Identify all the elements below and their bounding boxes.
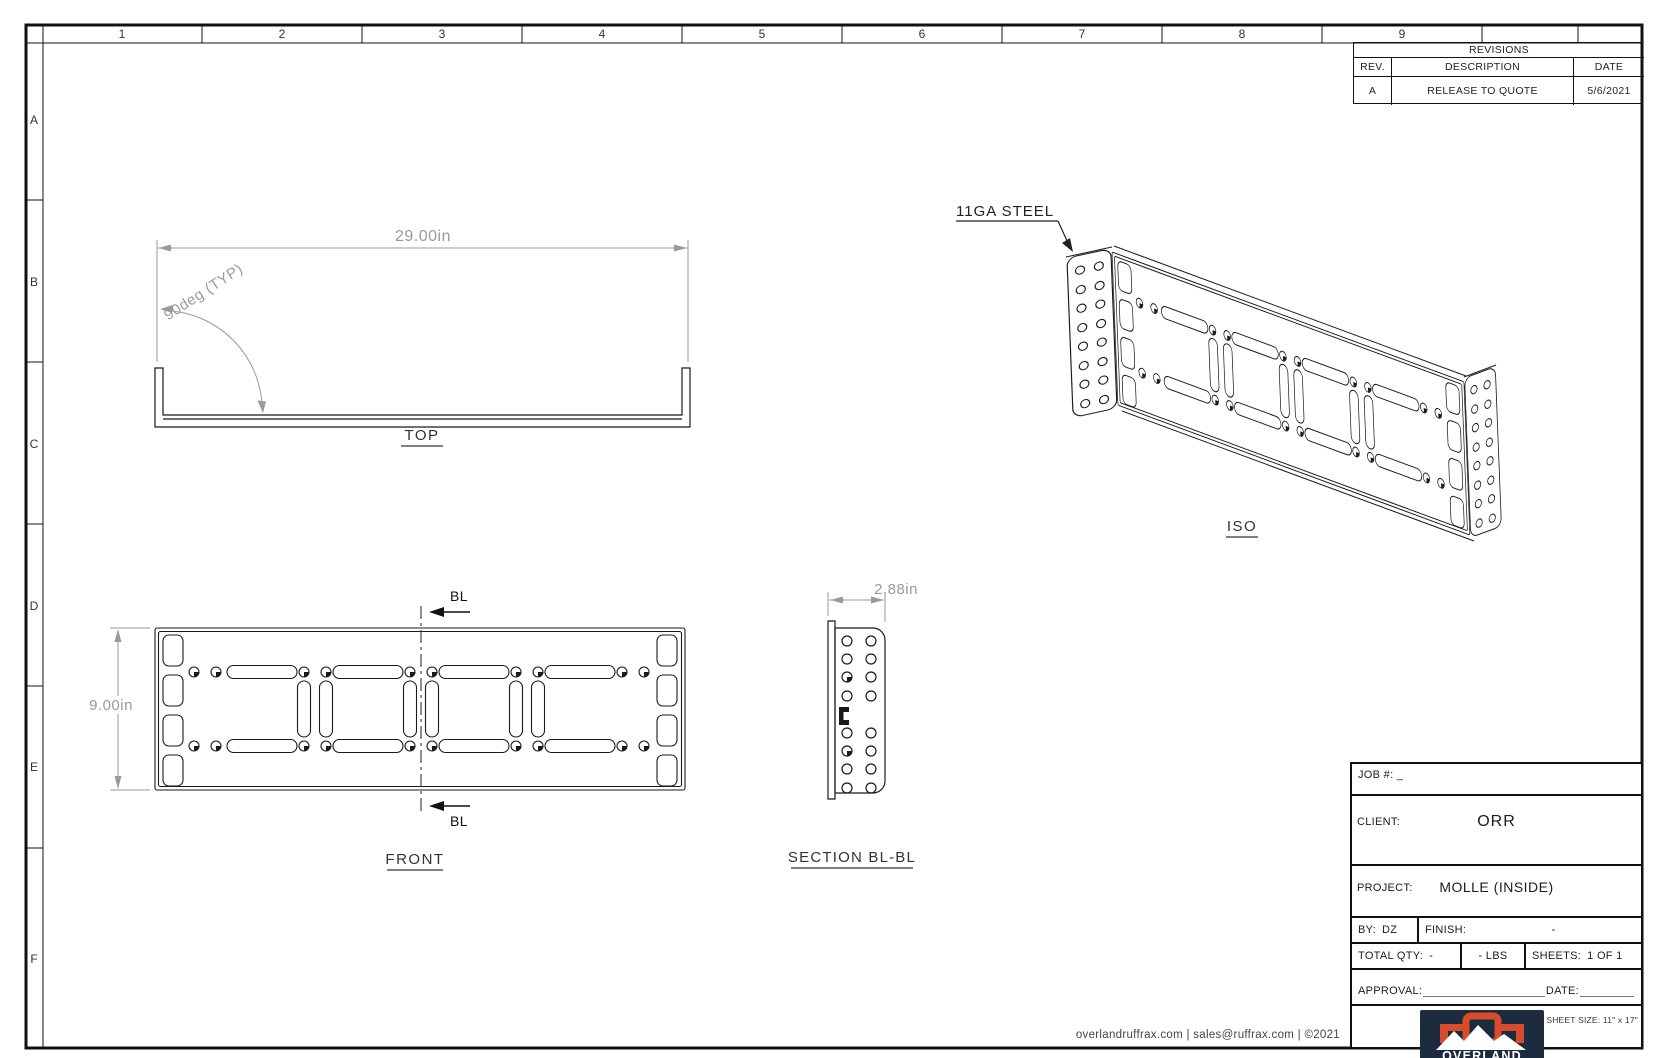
by-value: DZ — [1382, 924, 1397, 936]
project-row: PROJECT: MOLLE (INSIDE) — [1352, 879, 1641, 918]
approval-date-label: DATE: — [1546, 985, 1579, 997]
finish-label: FINISH: — [1425, 924, 1466, 936]
view-label-front: FRONT — [385, 851, 444, 868]
iso-right-flange — [1465, 367, 1502, 538]
job-value: _ — [1397, 769, 1403, 781]
dimension-288in: 2.88in — [874, 581, 918, 598]
client-label: CLIENT: — [1357, 816, 1400, 828]
grid-column-label: 9 — [1399, 27, 1406, 41]
project-label: PROJECT: — [1357, 882, 1413, 894]
sheets-label: SHEETS: — [1532, 950, 1581, 962]
grid-row-label: F — [30, 952, 37, 966]
revisions-col-rev: REV. — [1354, 58, 1392, 77]
title-block: JOB #: _ CLIENT: ORR PROJECT: MOLLE (INS… — [1350, 762, 1643, 1049]
grid-column-label: 8 — [1239, 27, 1246, 41]
grid-row-label: E — [30, 760, 38, 774]
logo-brand-text: OVERLAND — [1442, 1049, 1522, 1058]
job-number-row: JOB #: _ — [1352, 764, 1641, 796]
revision-row-description: RELEASE TO QUOTE — [1392, 77, 1574, 105]
dimension-90deg: 90deg (TYP) — [161, 260, 246, 324]
slot-web-cross-section — [839, 707, 849, 725]
dimension-9in: 9.00in — [89, 697, 133, 714]
top-view: 29.00in 90deg (TYP) TOP — [155, 228, 690, 446]
approval-label: APPROVAL: — [1358, 985, 1422, 997]
total-qty-value: - — [1429, 950, 1433, 962]
grid-column-label: 2 — [279, 27, 286, 41]
section-view: 2.88in SECTION BL-BL — [788, 581, 918, 868]
dimension-29in: 29.00in — [395, 228, 451, 245]
material-callout: 11GA STEEL — [956, 203, 1054, 220]
company-logo: OVERLAND RUFF RAX — [1420, 1010, 1544, 1058]
grid-column-label: 1 — [119, 27, 126, 41]
iso-view: 11GA STEEL ISO — [956, 203, 1501, 541]
revisions-table: REVISIONS REV. DESCRIPTION DATE A RELEAS… — [1353, 42, 1643, 104]
view-label-top: TOP — [404, 427, 439, 444]
front-view: 9.00in BL BL FRONT — [89, 588, 685, 870]
zone-grid-labels: 1 2 3 4 5 6 7 8 9 A B C D E F — [30, 27, 1406, 966]
view-label-section: SECTION BL-BL — [788, 849, 916, 866]
approval-row: APPROVAL: DATE: — [1352, 970, 1641, 1006]
total-qty-label: TOTAL QTY: — [1358, 950, 1423, 962]
grid-column-label: 6 — [919, 27, 926, 41]
grid-row-label: D — [30, 599, 39, 613]
approval-signature-line — [1423, 983, 1545, 997]
grid-column-label: 7 — [1079, 27, 1086, 41]
drawing-sheet: 1 2 3 4 5 6 7 8 9 A B C D E F — [0, 0, 1666, 1058]
grid-row-label: A — [30, 113, 38, 127]
revisions-title: REVISIONS — [1354, 43, 1644, 58]
qty-weight-sheets-row: TOTAL QTY: - - LBS SHEETS: 1 OF 1 — [1352, 944, 1641, 970]
by-label: BY: — [1358, 924, 1376, 936]
view-label-iso: ISO — [1227, 518, 1257, 535]
revision-row-rev: A — [1354, 77, 1392, 105]
section-marker-bl-top: BL — [450, 588, 468, 604]
sheet-size-note: SHEET SIZE: 11" x 17" — [1546, 1015, 1638, 1025]
finish-value: - — [1472, 924, 1635, 936]
revision-row-date: 5/6/2021 — [1574, 77, 1644, 105]
grid-row-label: B — [30, 275, 38, 289]
approval-date-line — [1580, 983, 1634, 997]
footer-contact: overlandruffrax.com | sales@ruffrax.com … — [1030, 1029, 1340, 1041]
weight-value: - LBS — [1478, 950, 1507, 962]
revisions-col-date: DATE — [1574, 58, 1644, 77]
grid-row-label: C — [30, 437, 39, 451]
client-row: CLIENT: ORR — [1352, 813, 1641, 866]
section-marker-bl-bottom: BL — [450, 813, 468, 829]
grid-column-label: 4 — [599, 27, 606, 41]
grid-column-label: 3 — [439, 27, 446, 41]
job-label: JOB #: — [1358, 769, 1393, 781]
sheets-value: 1 OF 1 — [1587, 950, 1622, 962]
revisions-col-description: DESCRIPTION — [1392, 58, 1574, 77]
by-finish-row: BY: DZ FINISH: - — [1352, 918, 1641, 944]
grid-column-label: 5 — [759, 27, 766, 41]
iso-left-flange — [1067, 249, 1117, 418]
logo-row: OVERLAND RUFF RAX SHEET SIZE: 11" x 17" — [1352, 1006, 1641, 1058]
